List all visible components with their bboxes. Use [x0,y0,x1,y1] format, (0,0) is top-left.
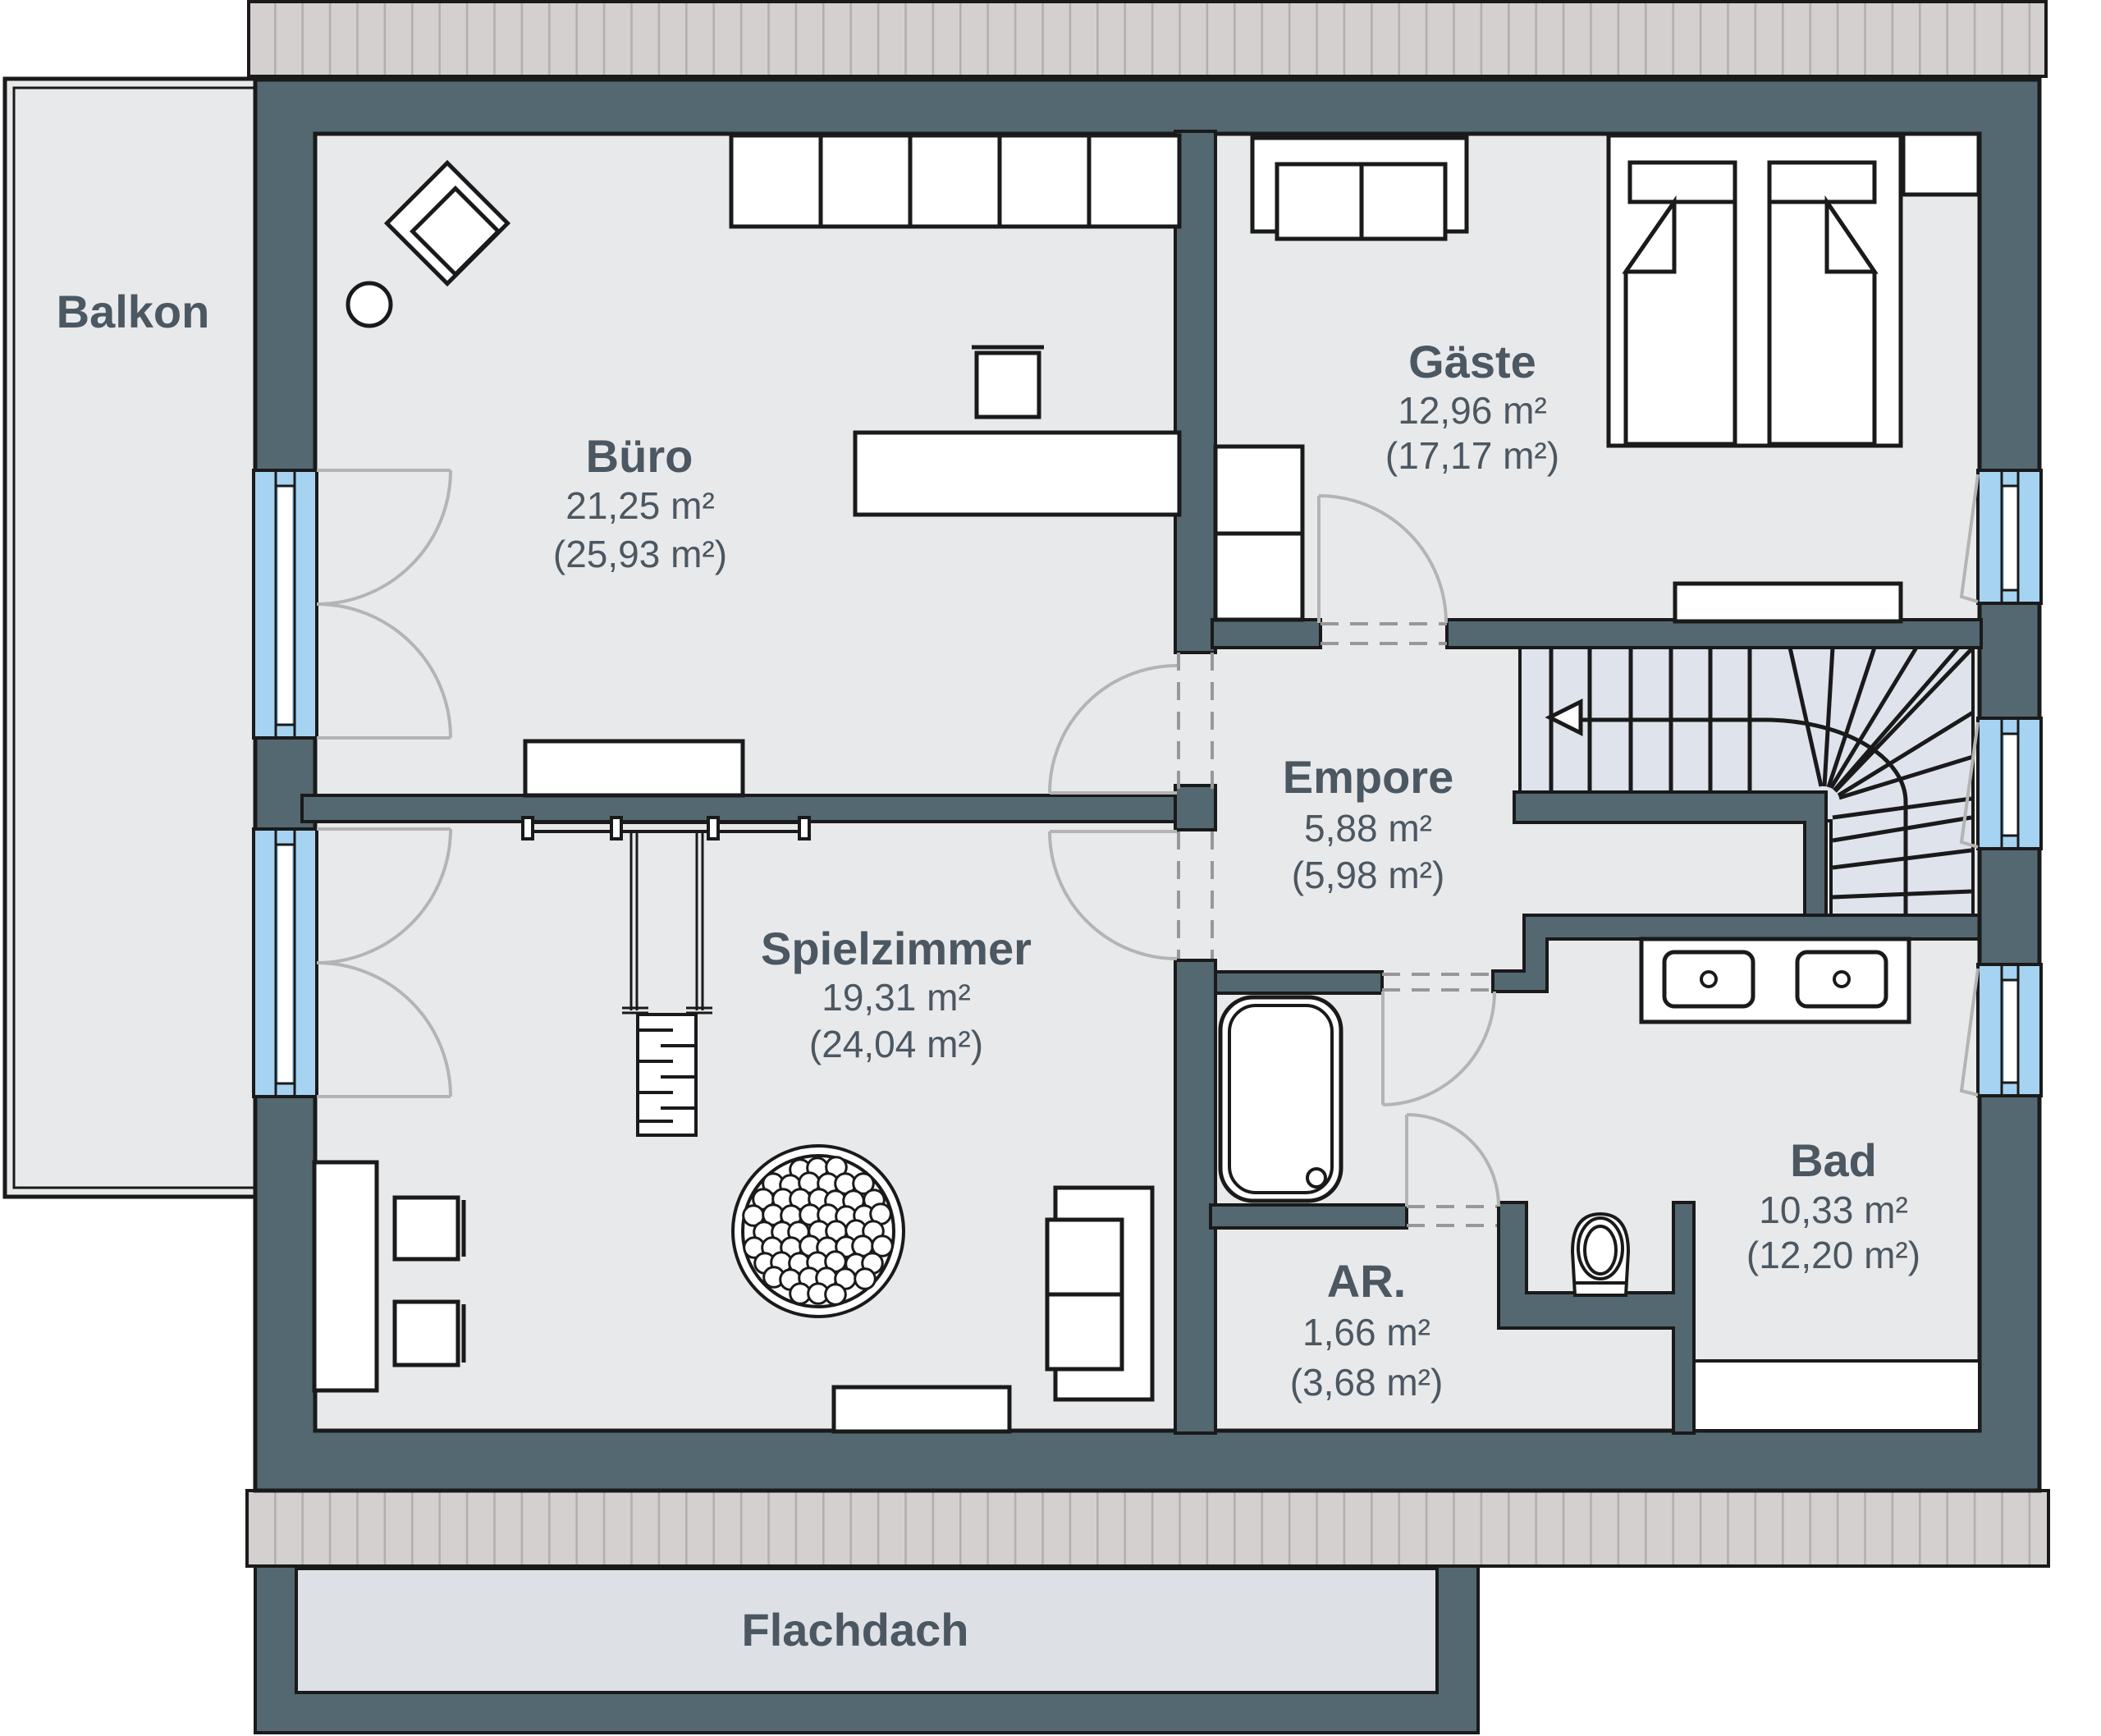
svg-text:Bad: Bad [1790,1134,1877,1186]
svg-text:19,31 m²: 19,31 m² [822,976,971,1019]
svg-text:Büro: Büro [586,430,693,482]
svg-text:(24,04 m²): (24,04 m²) [809,1023,983,1065]
svg-text:(5,98 m²): (5,98 m²) [1292,854,1445,896]
svg-text:AR.: AR. [1327,1255,1406,1307]
svg-text:12,96 m²: 12,96 m² [1398,389,1547,432]
svg-text:10,33 m²: 10,33 m² [1759,1189,1908,1231]
svg-text:5,88 m²: 5,88 m² [1304,807,1432,850]
svg-text:Empore: Empore [1283,751,1454,803]
svg-text:21,25 m²: 21,25 m² [565,484,715,527]
svg-text:(17,17 m²): (17,17 m²) [1385,434,1559,477]
svg-text:1,66 m²: 1,66 m² [1302,1311,1430,1354]
svg-text:(12,20 m²): (12,20 m²) [1746,1234,1920,1276]
svg-text:Balkon: Balkon [57,286,210,337]
svg-text:Gäste: Gäste [1408,336,1536,387]
svg-text:(25,93 m²): (25,93 m²) [553,533,727,575]
svg-text:(3,68 m²): (3,68 m²) [1290,1361,1444,1404]
svg-text:Spielzimmer: Spielzimmer [761,923,1032,974]
svg-text:Flachdach: Flachdach [742,1604,969,1656]
